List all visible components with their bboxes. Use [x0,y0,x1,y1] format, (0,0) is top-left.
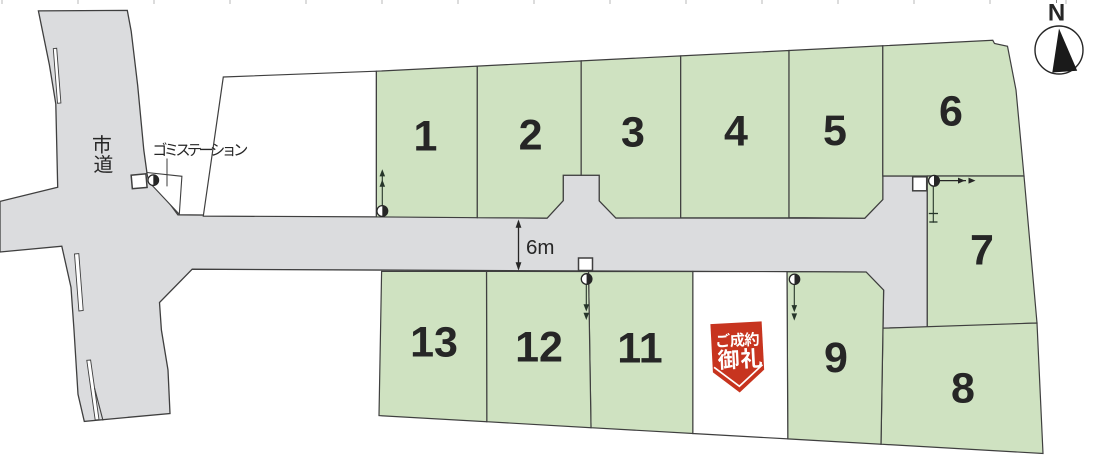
svg-text:12: 12 [515,324,563,372]
svg-text:4: 4 [724,107,748,155]
svg-text:6: 6 [939,88,963,136]
svg-text:5: 5 [823,107,847,155]
svg-text:3: 3 [621,109,645,157]
svg-text:13: 13 [410,318,458,366]
svg-text:6m: 6m [526,236,554,259]
svg-text:1: 1 [414,113,438,161]
svg-text:11: 11 [617,325,662,373]
svg-text:N: N [1048,0,1065,27]
svg-text:9: 9 [824,334,848,382]
svg-text:7: 7 [970,227,994,275]
svg-text:2: 2 [519,112,543,160]
svg-text:8: 8 [951,365,975,413]
